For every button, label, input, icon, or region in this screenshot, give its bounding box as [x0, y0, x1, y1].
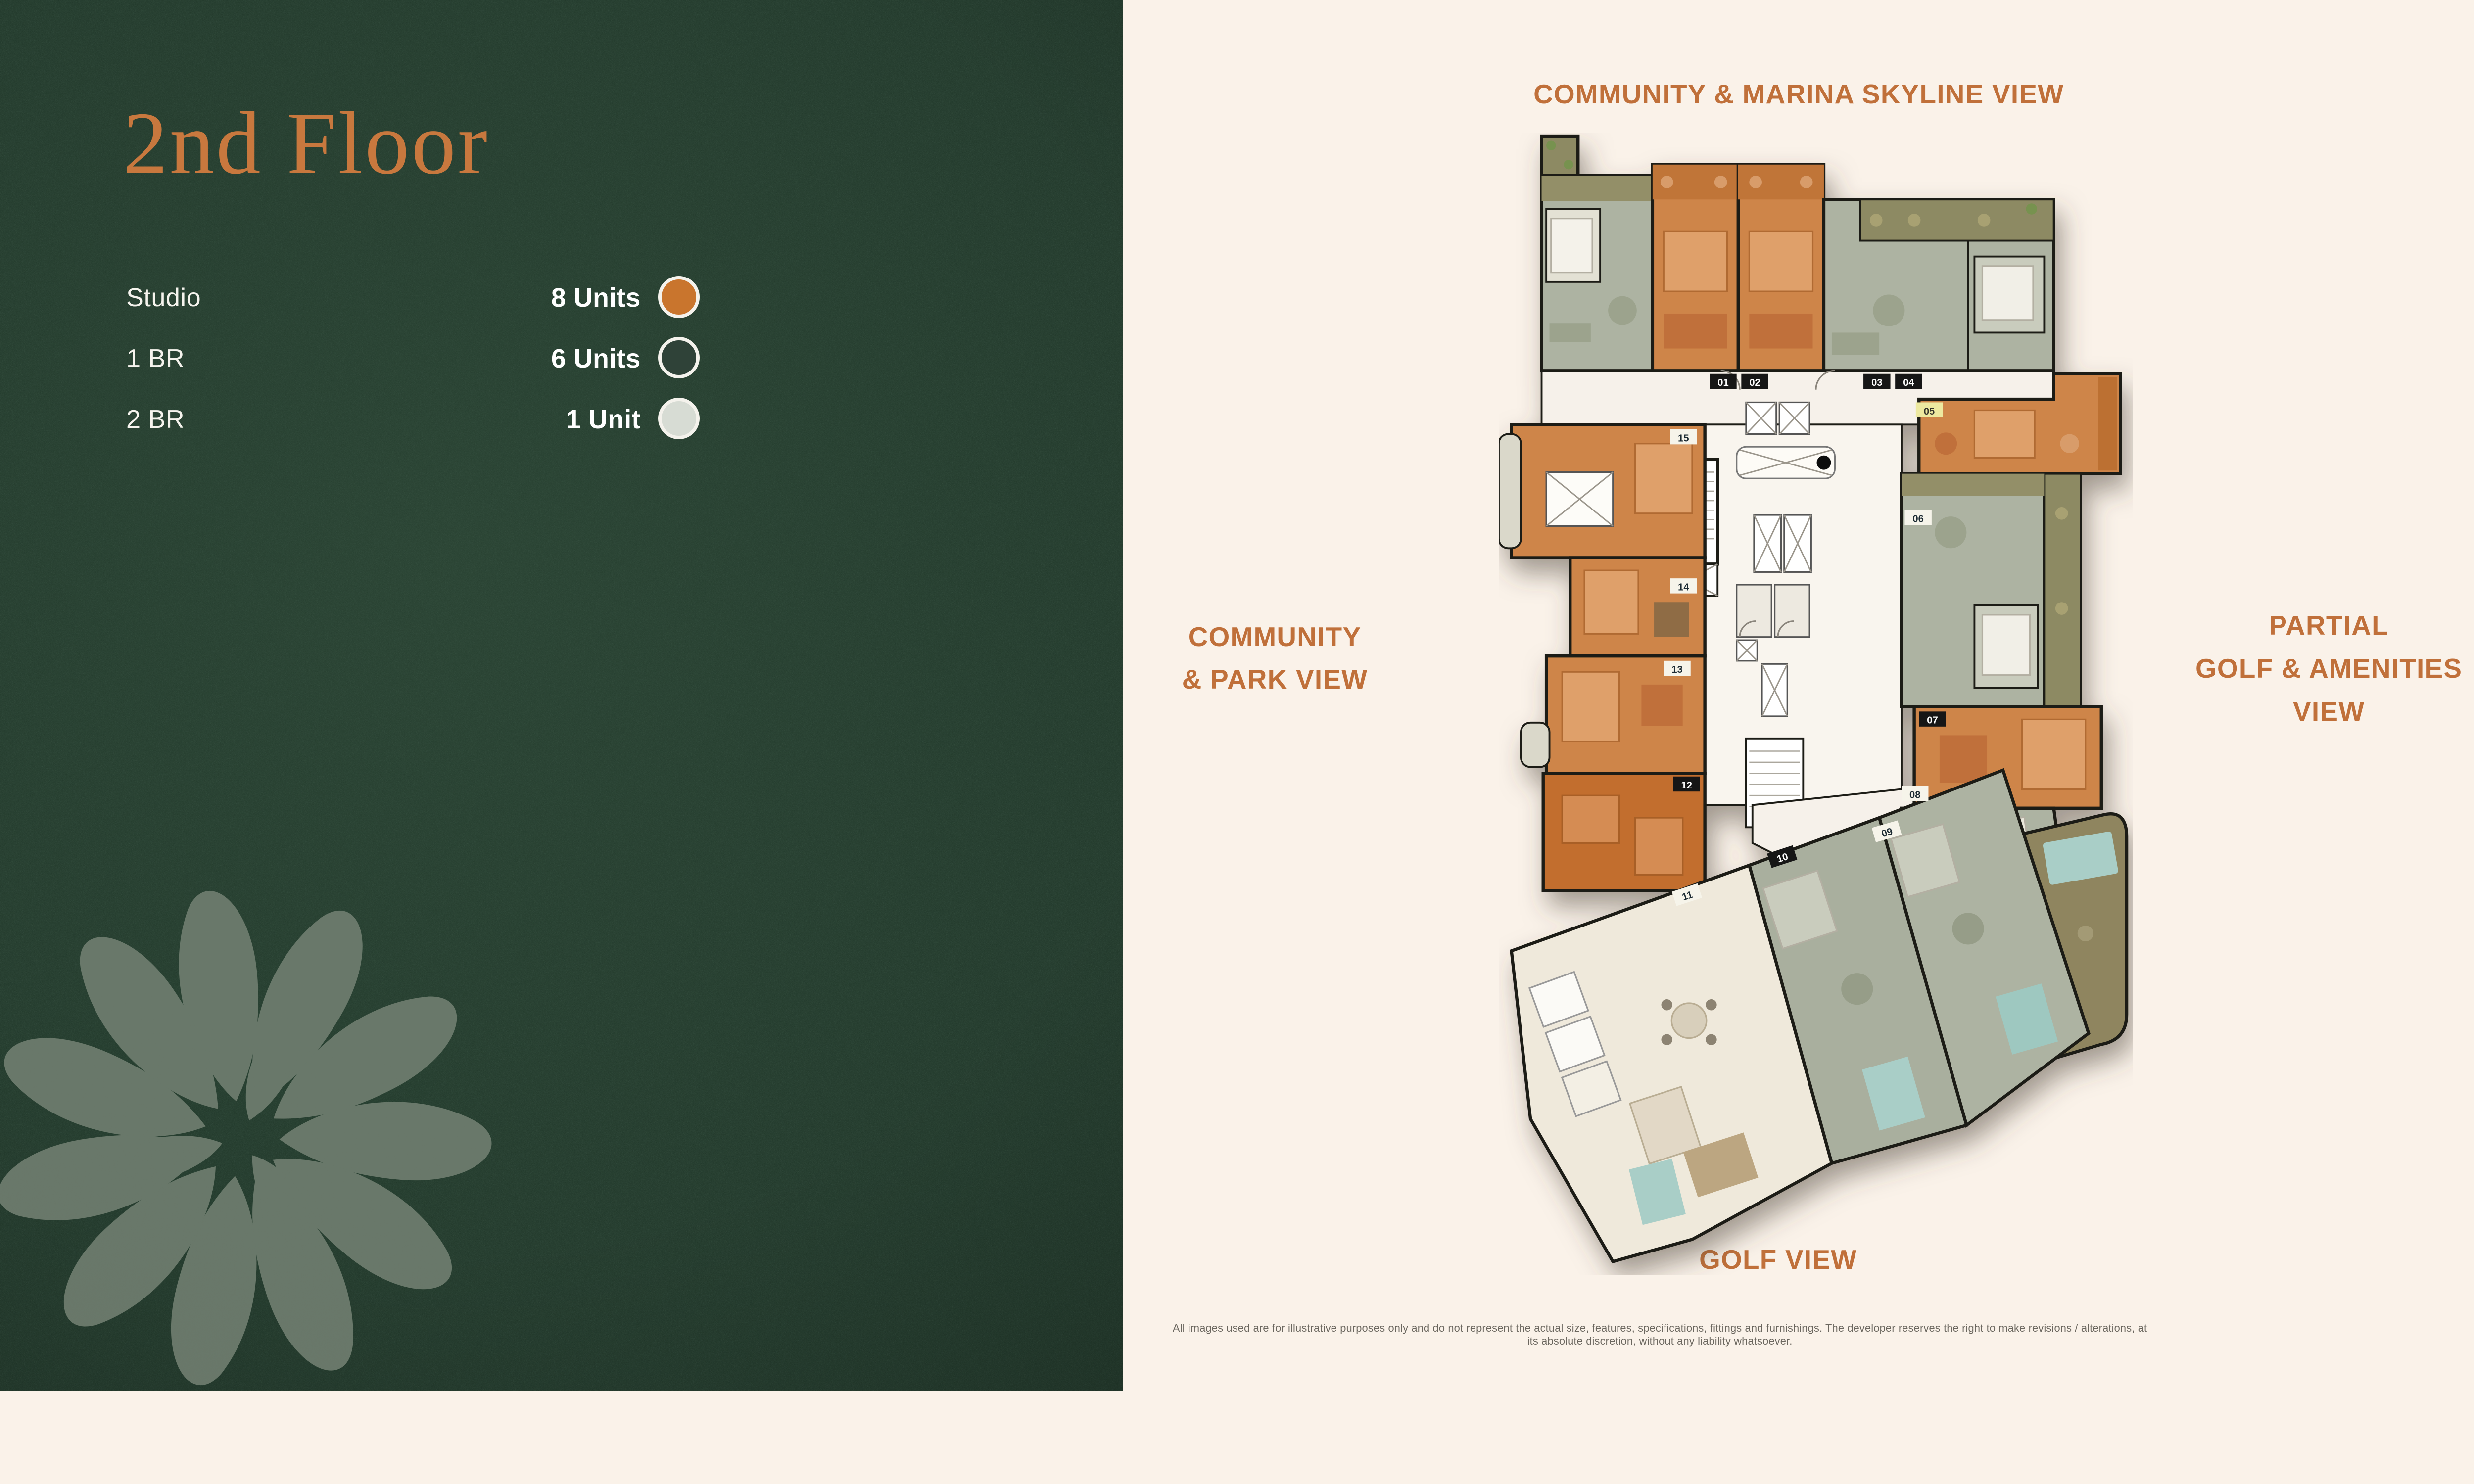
unit-tag-05: 05 [1916, 402, 1943, 417]
svg-text:15: 15 [1678, 433, 1689, 444]
disclaimer-text: All images used are for illustrative pur… [1171, 1322, 2149, 1347]
legend-value-studio: 8 Units [521, 283, 640, 313]
page-title: 2nd Floor [123, 94, 489, 192]
petal-flower-decoration [0, 855, 502, 1391]
unit-tag-03: 03 [1863, 374, 1890, 389]
legend-row-1br: 1 BR 6 Units [0, 344, 1123, 391]
svg-text:08: 08 [1909, 789, 1920, 800]
legend-value-2br: 1 Unit [521, 405, 640, 435]
unit-14 [1570, 557, 1705, 656]
view-label-left-line1: COMMUNITY [1171, 615, 1379, 658]
view-label-right-line1: PARTIAL [2193, 604, 2464, 647]
view-label-right-line2: GOLF & AMENITIES [2193, 647, 2464, 690]
unit-01 [1542, 136, 1653, 371]
unit-tag-02: 02 [1742, 374, 1768, 389]
unit-tag-06: 06 [1905, 510, 1932, 525]
balcony-unit-04 [1860, 199, 2054, 240]
unit-tag-04: 04 [1896, 374, 1922, 389]
view-label-left-line2: & PARK VIEW [1171, 658, 1379, 701]
view-label-top: COMMUNITY & MARINA SKYLINE VIEW [1123, 73, 2474, 116]
unit-tag-08: 08 [1902, 786, 1928, 801]
legend-label-1br: 1 BR [126, 344, 185, 373]
balcony-unit-01 [1542, 136, 1578, 176]
legend-swatch-studio-icon [658, 276, 700, 318]
svg-text:12: 12 [1681, 780, 1692, 791]
unit-tag-01: 01 [1710, 374, 1737, 389]
floor-plan: 01 02 03 04 05 06 07 08 09 10 11 12 13 1… [1499, 133, 2133, 1275]
unit-tag-12: 12 [1673, 777, 1700, 791]
svg-text:07: 07 [1927, 715, 1938, 726]
legend-label-studio: Studio [126, 283, 201, 313]
svg-text:03: 03 [1871, 377, 1882, 388]
view-label-right-line3: VIEW [2193, 690, 2464, 733]
view-label-left: COMMUNITY & PARK VIEW [1171, 615, 1379, 701]
lobby-plant-icon [1817, 456, 1831, 470]
unit-tag-13: 13 [1664, 661, 1691, 676]
svg-text:14: 14 [1678, 582, 1689, 593]
svg-text:04: 04 [1903, 377, 1915, 388]
svg-text:06: 06 [1913, 514, 1924, 525]
legend-label-2br: 2 BR [126, 405, 185, 434]
unit-tag-14: 14 [1670, 578, 1697, 593]
legend-swatch-2br-icon [658, 398, 700, 440]
svg-text:13: 13 [1672, 664, 1683, 675]
unit-03 [1738, 165, 1824, 371]
legend-row-studio: Studio 8 Units [0, 283, 1123, 330]
unit-02 [1653, 165, 1738, 371]
unit-04 [1824, 199, 2054, 371]
svg-text:02: 02 [1750, 377, 1760, 388]
unit-tag-15: 15 [1670, 429, 1697, 444]
left-panel: 2nd Floor Studio 8 Units 1 BR 6 Units 2 … [0, 0, 1123, 1391]
unit-06 [1902, 474, 2081, 707]
unit-tag-07: 07 [1919, 711, 1946, 726]
legend-swatch-1br-icon [658, 337, 700, 379]
legend-value-1br: 6 Units [521, 344, 640, 374]
right-panel: COMMUNITY & MARINA SKYLINE VIEW COMMUNIT… [1123, 0, 2474, 1391]
unit-15 [1499, 424, 1705, 557]
svg-text:05: 05 [1924, 406, 1935, 417]
legend-row-2br: 2 BR 1 Unit [0, 405, 1123, 452]
view-label-right: PARTIAL GOLF & AMENITIES VIEW [2193, 604, 2464, 733]
svg-text:01: 01 [1718, 377, 1729, 388]
